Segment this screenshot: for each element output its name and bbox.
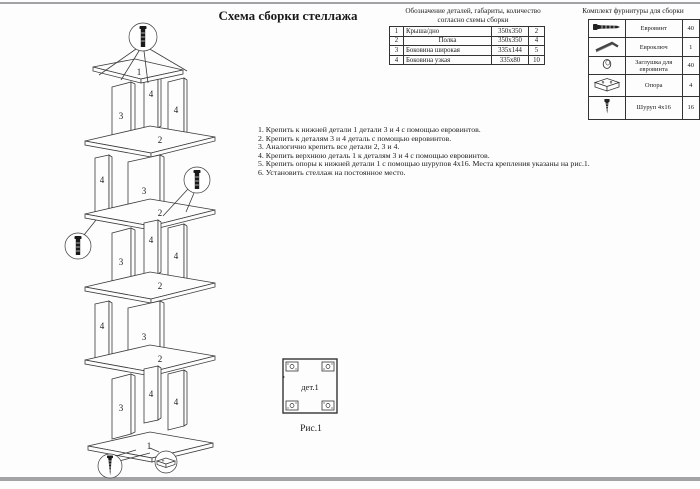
part-label-narrow: 4 [100, 175, 105, 185]
tier5-panels: 4 4 3 [112, 366, 187, 439]
part-label-shelf: 2 [158, 135, 163, 145]
part-label-narrow: 4 [149, 389, 154, 399]
hardware-qty: 1 [682, 38, 699, 57]
part-label-narrow: 4 [149, 89, 154, 99]
part-label-narrow: 4 [174, 251, 179, 261]
part-label-wide: 3 [119, 257, 124, 267]
parts-table: 1 Крыша/дно 350х350 2 2 Полка 350х350 4 … [389, 26, 545, 65]
part-label-narrow: 4 [100, 321, 105, 331]
part-label-shelf: 2 [158, 281, 163, 291]
table-row: Заглушка для евровинта 40 [589, 57, 700, 75]
instruction-step: 6. Установить стеллаж на постоянное мест… [258, 169, 658, 178]
hardware-table-title: Комплект фурнитуры для сборки [568, 7, 698, 15]
part-number: 2 [390, 36, 404, 46]
cap-icon [589, 57, 626, 75]
hardware-name: Шуруп 4х16 [625, 97, 682, 119]
callout-left-euroscrew [65, 220, 96, 259]
table-row: Шуруп 4х16 16 [589, 97, 700, 119]
support-icon [589, 75, 626, 97]
parts-caption-line1: Обозначение деталей, габариты, количеств… [375, 7, 571, 16]
part-size: 335х144 [492, 46, 529, 56]
table-row: Евровинт 40 [589, 20, 700, 38]
instructions-list: 1. Крепить к нижней детали 1 детали 3 и … [258, 126, 658, 177]
table-row: 3 Боковина широкая 335х144 5 [390, 46, 545, 56]
part-qty: 10 [529, 55, 545, 65]
document-page: Схема сборки стеллажа Обозначение детале… [0, 0, 700, 489]
hardware-qty: 40 [682, 57, 699, 75]
part-label-shelf: 2 [158, 354, 163, 364]
hardware-qty: 4 [682, 75, 699, 97]
table-row: 2 Полка 350х350 4 [390, 36, 545, 46]
part-label-top: 1 [137, 67, 142, 77]
table-row: 4 Боковина узкая 335х80 10 [390, 55, 545, 65]
hex-key-icon [589, 38, 626, 57]
part-qty: 5 [529, 46, 545, 56]
table-row: Опора 4 [589, 75, 700, 97]
part-number: 4 [390, 55, 404, 65]
part-label-wide: 3 [119, 111, 124, 121]
part-name: Боковина широкая [404, 46, 492, 56]
detail-label: дет.1 [301, 382, 319, 392]
part-name: Боковина узкая [404, 55, 492, 65]
corner-plate [286, 401, 298, 410]
part-label-wide: 3 [142, 186, 147, 196]
part-name: Полка [404, 36, 492, 46]
hardware-qty: 16 [682, 97, 699, 119]
part-label-wide: 3 [142, 332, 147, 342]
table-row: Евроключ 1 [589, 38, 700, 57]
euro-screw-icon [589, 20, 626, 38]
parts-caption-line2: согласно схемы сборки [375, 16, 571, 25]
part-label-narrow: 4 [174, 105, 179, 115]
shelf-panel: 2 [85, 272, 215, 303]
shelf-panel: 2 [85, 126, 215, 157]
part-label-narrow: 4 [174, 397, 179, 407]
part-qty: 4 [529, 36, 545, 46]
table-row: 1 Крыша/дно 350х350 2 [390, 27, 545, 37]
top-panel: 1 [93, 59, 183, 83]
part-label-shelf: 2 [158, 208, 163, 218]
corner-plate [322, 401, 334, 410]
part-number: 3 [390, 46, 404, 56]
part-size: 335х80 [492, 55, 529, 65]
corner-plate [286, 362, 298, 371]
part-label-wide: 3 [119, 403, 124, 413]
corner-plate [322, 362, 334, 371]
part-size: 350х350 [492, 36, 529, 46]
hardware-name: Заглушка для евровинта [625, 57, 682, 75]
edge-mark [283, 376, 285, 378]
hardware-name: Евровинт [625, 20, 682, 38]
part-number: 1 [390, 27, 404, 37]
part-size: 350х350 [492, 27, 529, 37]
hardware-name: Опора [625, 75, 682, 97]
hardware-qty: 40 [682, 20, 699, 38]
hardware-name: Евроключ [625, 38, 682, 57]
part-name: Крыша/дно [404, 27, 492, 37]
part-label-base: 1 [147, 441, 152, 451]
figure-caption: Рис.1 [281, 424, 341, 434]
hardware-table: Евровинт 40 Евроключ 1 Заглушка для евро… [588, 19, 700, 120]
detail-figure: дет.1 [281, 357, 341, 417]
assembly-diagram: 4 4 3 1 2 4 3 2 [0, 0, 260, 489]
parts-table-caption: Обозначение деталей, габариты, количеств… [375, 7, 571, 25]
part-label-narrow: 4 [149, 235, 154, 245]
screw-icon [589, 97, 626, 119]
part-qty: 2 [529, 27, 545, 37]
